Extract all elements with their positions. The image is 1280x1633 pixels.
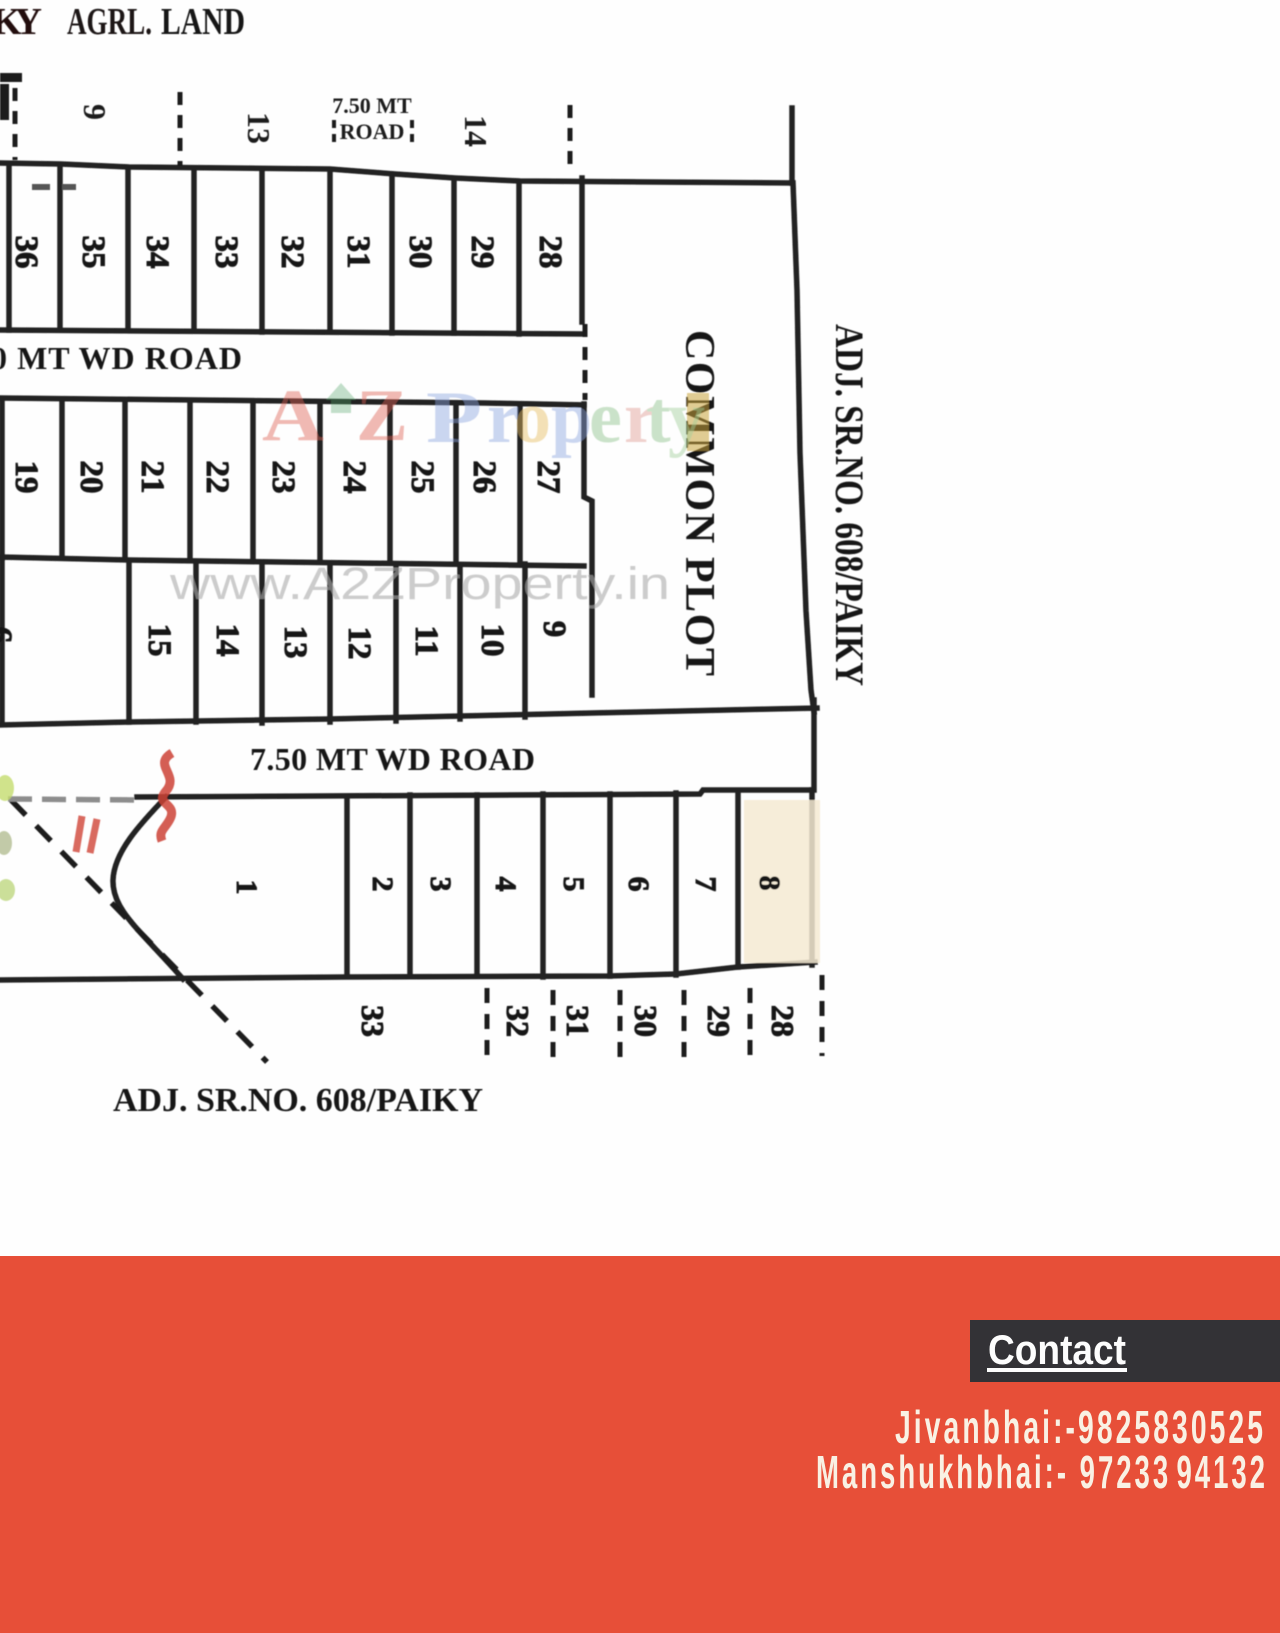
svg-text:32: 32 [500,1005,536,1037]
svg-text:2: 2 [366,877,399,892]
svg-text:ADJ. SR.NO. 608/PAIKY: ADJ. SR.NO. 608/PAIKY [827,324,872,686]
svg-text:6: 6 [622,877,655,892]
svg-text:34: 34 [139,236,175,269]
svg-text:28: 28 [532,236,568,269]
svg-text:Z: Z [356,375,408,457]
svg-text:LAND: LAND [161,1,245,43]
svg-text:23: 23 [265,461,301,494]
svg-text:14: 14 [458,115,494,147]
svg-text:26: 26 [466,461,502,494]
svg-text:30: 30 [402,236,438,269]
svg-text:31: 31 [560,1005,596,1037]
svg-text:6: 6 [0,627,18,644]
svg-text:24: 24 [336,461,372,494]
svg-text:30: 30 [628,1005,664,1037]
svg-text:20: 20 [73,461,109,494]
svg-text:19: 19 [8,461,44,494]
svg-text:A: A [262,375,324,457]
svg-text:21: 21 [134,461,170,494]
svg-text:13: 13 [277,626,313,659]
svg-text:5: 5 [557,877,590,892]
svg-text:8: 8 [753,876,786,891]
svg-text:33: 33 [355,1005,391,1037]
svg-text:9: 9 [536,621,572,638]
svg-text:33: 33 [208,236,244,269]
svg-text:10: 10 [474,624,510,657]
svg-text:27: 27 [530,461,566,494]
svg-text:7: 7 [689,877,722,892]
svg-text:14: 14 [209,624,245,657]
svg-text:7.50 MT WD ROAD: 7.50 MT WD ROAD [250,741,538,777]
svg-text:7.50 MT: 7.50 MT [332,93,412,118]
svg-text:35: 35 [75,236,111,269]
svg-text:12: 12 [341,627,377,660]
svg-text:11: 11 [408,625,444,656]
svg-text:y: y [668,377,705,459]
svg-text:25: 25 [404,461,440,494]
svg-text:36: 36 [8,236,44,269]
svg-text:30 MT WD ROAD: 30 MT WD ROAD [0,340,246,376]
svg-text:13: 13 [241,112,277,144]
svg-text:www.A2ZProperty.in: www.A2ZProperty.in [169,558,670,609]
svg-text:P: P [426,377,482,459]
svg-text:3: 3 [424,877,457,892]
svg-text:Contact: Contact [988,1326,1126,1373]
svg-text:ADJ. SR.NO. 608/PAIKY: ADJ. SR.NO. 608/PAIKY [113,1082,485,1119]
svg-text:Manshukhbhai:- 97233 94132: Manshukhbhai:- 97233 94132 [816,1446,1268,1498]
svg-text:1: 1 [230,880,263,895]
svg-text:AGRL.: AGRL. [67,1,152,43]
svg-text:9: 9 [77,104,113,120]
svg-text:31: 31 [340,236,376,269]
svg-text:KY: KY [0,1,42,43]
svg-text:p: p [551,377,592,459]
svg-text:22: 22 [199,461,235,494]
svg-text:e: e [589,377,622,459]
svg-text:ROAD: ROAD [340,119,405,144]
svg-text:28: 28 [765,1005,801,1037]
svg-text:15: 15 [141,624,177,657]
svg-text:32: 32 [274,236,310,269]
svg-text:29: 29 [464,236,500,269]
svg-text:4: 4 [489,877,522,892]
svg-text:o: o [514,377,551,459]
svg-text:29: 29 [701,1005,737,1037]
